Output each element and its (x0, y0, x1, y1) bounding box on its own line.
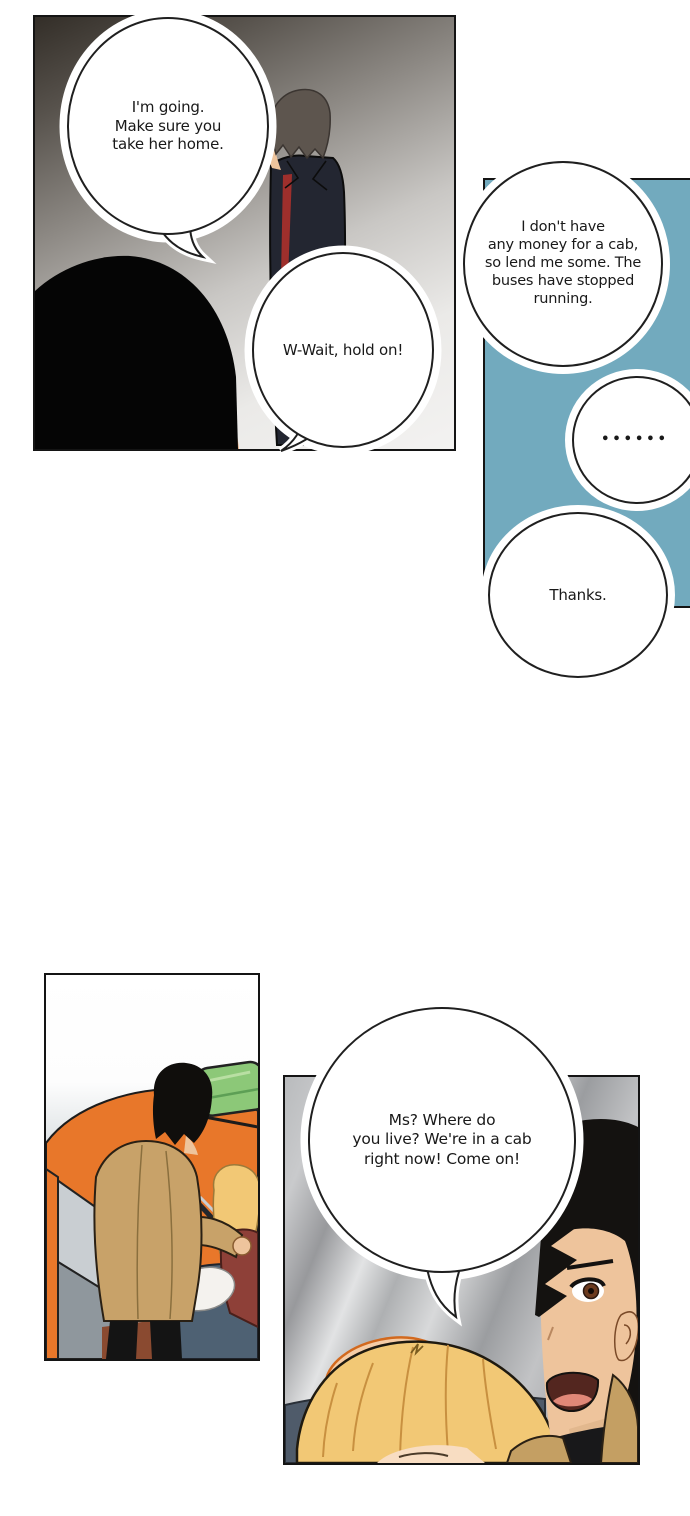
panel-taxi-art (46, 975, 258, 1359)
bubble-line: running. (534, 291, 593, 309)
bubble-line: I'm going. (132, 98, 205, 117)
bubble-line: you live? We're in a cab (352, 1130, 531, 1149)
bubble-line: buses have stopped (492, 273, 634, 291)
bubble-text-going-home: I'm going. Make sure you take her home. (68, 66, 268, 186)
bubble-line: any money for a cab, (488, 237, 638, 255)
bubble-line: so lend me some. The (485, 255, 641, 273)
bubble-line: Ms? Where do (389, 1111, 496, 1130)
grey-hair (270, 89, 331, 158)
bubble-line: I don't have (521, 219, 605, 237)
man-jacket (94, 1141, 201, 1321)
bubble-line: •••••• (601, 432, 669, 448)
bubble-text-wait: W-Wait, hold on! (253, 300, 433, 400)
bubble-line: Make sure you (115, 117, 221, 136)
man-hand (233, 1237, 251, 1255)
bubble-text-silence: •••••• (585, 408, 685, 472)
bubble-line: W-Wait, hold on! (283, 341, 403, 360)
bubble-text-thanks: Thanks. (489, 553, 667, 637)
pupil (588, 1288, 594, 1294)
bubble-line: Thanks. (549, 586, 606, 605)
door-edge (46, 1169, 58, 1359)
panel-taxi-boarding (44, 973, 260, 1361)
silhouette-head (35, 256, 239, 449)
comic-page: I'm going. Make sure you take her home. … (0, 0, 690, 1516)
bubble-line: right now! Come on! (364, 1150, 520, 1169)
silhouette-hair (35, 256, 238, 449)
bubble-text-no-money: I don't have any money for a cab, so len… (464, 212, 662, 316)
bubble-line: take her home. (112, 135, 223, 154)
bubble-text-where-live: Ms? Where do you live? We're in a cab ri… (310, 1074, 574, 1206)
